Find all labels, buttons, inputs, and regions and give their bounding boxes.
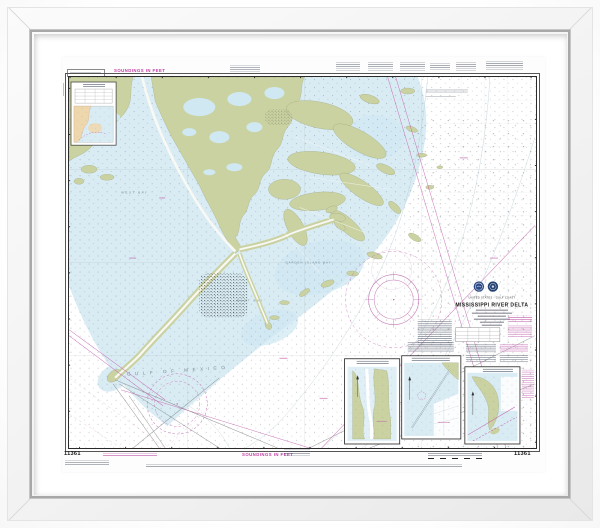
- east-bay-label: EAST BAY: [237, 299, 263, 303]
- margin-note: [400, 62, 425, 71]
- margin-note: [230, 65, 260, 72]
- chart-number-left: 11361: [64, 451, 81, 457]
- garden-bay-label: GARDEN ISLAND BAY: [285, 261, 331, 265]
- frame-miter: [567, 7, 591, 31]
- frame-miter: [567, 496, 591, 520]
- west-bay-label: WEST BAY: [121, 190, 148, 194]
- inset-chart-3: [465, 367, 520, 444]
- chart-region-line: UNITED STATES - GULF COAST: [469, 296, 516, 300]
- chart-title: MISSISSIPPI RIVER DELTA: [455, 303, 528, 309]
- magenta-margin-note: [103, 453, 157, 457]
- noaa-seal-icon: [474, 281, 484, 291]
- inset-note: [466, 355, 496, 363]
- margin-note: [456, 62, 476, 71]
- margin-note-vertical: [63, 83, 66, 96]
- magenta-note: [522, 370, 534, 398]
- margin-note: [486, 61, 523, 71]
- soundings-note-top: SOUNDINGS IN FEET: [114, 68, 165, 73]
- map-note: [426, 89, 468, 93]
- map-note: [426, 95, 456, 98]
- scale-legend: [428, 451, 482, 457]
- chart-neatline: GULF OF MEXICO WEST BAY EAST BAY GARDEN …: [68, 76, 537, 449]
- caution-line: [146, 464, 462, 468]
- inset-approaches: [71, 82, 116, 145]
- inset-chart-2: [402, 356, 461, 439]
- magenta-note: [500, 344, 528, 352]
- magenta-note: [508, 316, 532, 323]
- title-table: [456, 328, 500, 342]
- edition-note: [65, 460, 109, 466]
- inset-note: [500, 355, 528, 363]
- chart-number-right: 11361: [514, 451, 531, 457]
- inset-note: [408, 342, 454, 352]
- frame-miter: [8, 496, 32, 520]
- dense-soundings-cluster: [199, 274, 247, 318]
- frame-miter: [8, 7, 32, 31]
- chart-paper: SOUNDINGS IN FEET: [62, 57, 545, 472]
- margin-note: [368, 62, 393, 71]
- margin-note: [336, 62, 360, 71]
- margin-note: [284, 449, 310, 457]
- chart-map: GULF OF MEXICO WEST BAY EAST BAY GARDEN …: [69, 77, 536, 448]
- commerce-seal-icon: [488, 281, 498, 291]
- magenta-note: [508, 326, 532, 337]
- margin-note: [430, 63, 450, 71]
- dense-soundings-cluster: [265, 109, 291, 125]
- inset-chart-1: [345, 359, 400, 444]
- inset-note: [466, 344, 496, 353]
- scale-bar: [428, 458, 482, 459]
- framed-chart-photo: SOUNDINGS IN FEET: [0, 0, 600, 528]
